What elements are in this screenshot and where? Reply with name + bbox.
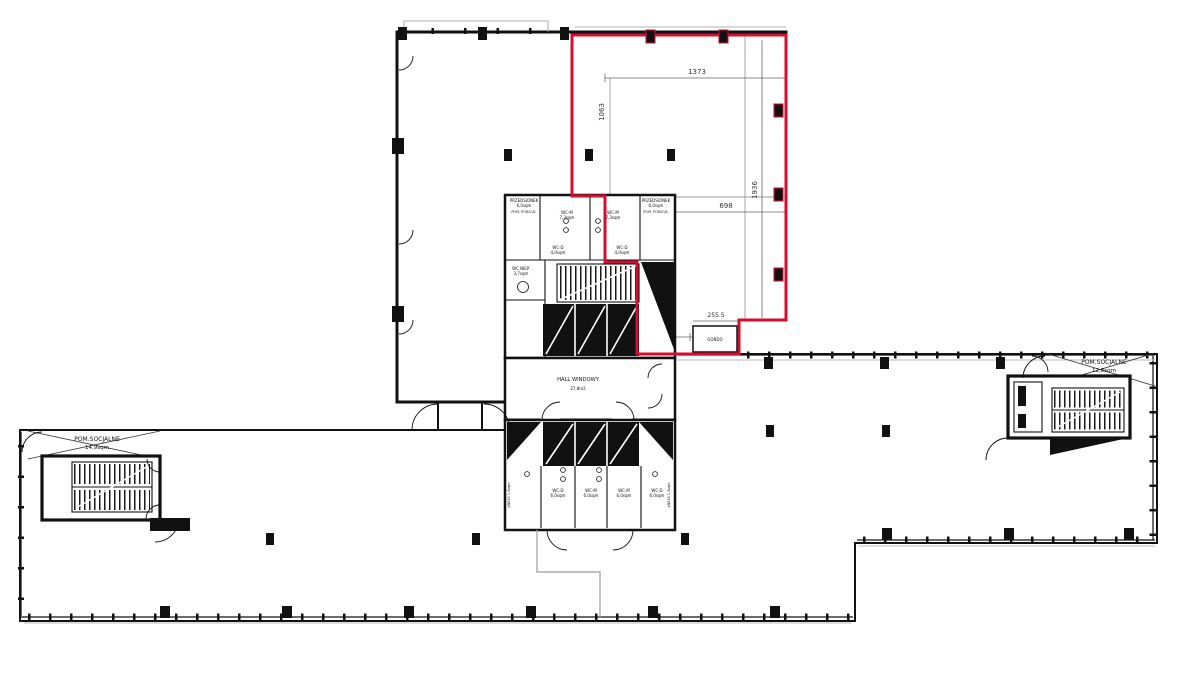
room-area-wc-d-upper-left: 4,0sqm	[551, 250, 566, 255]
room-area-wc-m-upper-left: 7,3sqm	[560, 215, 575, 220]
canopy-line	[404, 21, 548, 32]
room-area-social-left: 14,9sqm	[85, 445, 109, 451]
room-label-aneks-left: ANEKS 1,3sqm	[507, 482, 511, 508]
gondola-label: GONDO	[707, 337, 722, 342]
room-area-hall: 27,8m2	[570, 386, 586, 391]
elevator-hall: HALL WINDOWY 27,8m2	[505, 358, 675, 423]
room-area-wc-lower-1: 6,0sqm	[551, 493, 566, 498]
dimension-698: 698	[719, 202, 732, 210]
room-label-social-right: POM.SOCJALNE	[1081, 359, 1127, 366]
room-area-wc-d-upper-right: 4,0sqm	[615, 250, 630, 255]
room-area-wc-lower-2: 6,0sqm	[584, 493, 599, 498]
dimension-1936: 1936	[751, 181, 759, 199]
gondola-platform: GONDO	[693, 326, 737, 352]
room-area-przedsionek-right: 6,0sqm	[649, 203, 664, 208]
room-area-social-right: 12,8sqm	[1092, 368, 1116, 374]
floor-plan-drawing: 1373 1063 1936 698 255.5 240 150 228 GON…	[0, 0, 1188, 676]
room-label-pom-porzad-left: POM. PORZĄD.	[511, 210, 536, 214]
room-area-wc-lower-3: 6,0sqm	[617, 493, 632, 498]
room-label-hall: HALL WINDOWY	[557, 377, 600, 383]
dimension-1373: 1373	[688, 68, 706, 76]
room-area-wc-niep: 3,7sqm	[514, 271, 529, 276]
dimension-255-5: 255.5	[707, 312, 724, 319]
room-area-przedsionek-left: 6,0sqm	[517, 203, 532, 208]
room-label-social-left: POM.SOCJALNE	[74, 436, 120, 443]
room-area-wc-lower-4: 6,0sqm	[650, 493, 665, 498]
room-label-pom-porzad-right: POM. PORZĄD.	[643, 210, 668, 214]
floor-plan-sheet: 1373 1063 1936 698 255.5 240 150 228 GON…	[0, 0, 1188, 676]
upper-core: PRZEDSIONEK 6,0sqm POM. PORZĄD. PRZEDSIO…	[505, 195, 675, 358]
link-corridor	[438, 402, 482, 430]
room-label-aneks-right: ANEKS 1,3sqm	[667, 482, 671, 508]
dimension-1063: 1063	[598, 103, 606, 121]
room-area-wc-m-upper-right: 7,3sqm	[606, 215, 621, 220]
